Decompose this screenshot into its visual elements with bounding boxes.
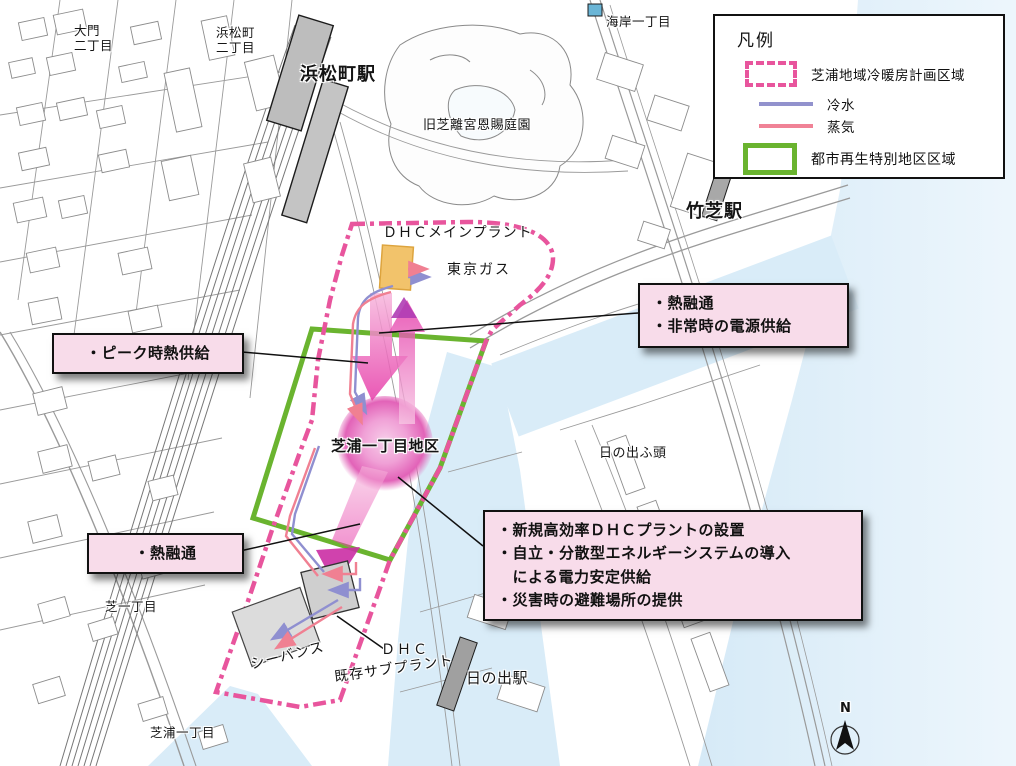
legend-item-cold-water: 冷水	[737, 94, 1003, 114]
label-takeshiba-station: 竹芝駅	[686, 201, 743, 222]
legend-box: 凡例 芝浦地域冷暖房計画区域 冷水 蒸気 都市再生特別地区区域	[713, 14, 1005, 179]
blue-line-icon	[759, 102, 813, 106]
label-hinode-station: 日の出駅	[466, 670, 528, 688]
label-kaigan-1chome: 海岸一丁目	[606, 15, 671, 30]
callout-heat-interchange-left: ・熱融通	[87, 533, 244, 574]
pink-dash-rect-icon	[745, 61, 797, 87]
label-hamamatsucho-station: 浜松町駅	[300, 64, 376, 85]
label-hinode-pier: 日の出ふ頭	[599, 446, 667, 461]
dhc-main-plant-building	[380, 245, 414, 290]
label-shibaura-1chome: 芝浦一丁目	[150, 726, 215, 741]
legend-item-label: 都市再生特別地区区域	[811, 149, 956, 169]
legend-item-plan-area: 芝浦地域冷暖房計画区域	[737, 61, 1003, 87]
flow-band-to-subplant	[332, 466, 388, 548]
green-rect-icon	[743, 143, 797, 175]
legend-title: 凡例	[737, 26, 1003, 51]
kyushiba-garden-park	[385, 25, 583, 205]
label-compass-north: N	[840, 701, 851, 716]
legend-item-label: 蒸気	[827, 116, 855, 136]
legend-item-steam: 蒸気	[737, 116, 1003, 136]
callout-new-dhc-plant: ・新規高効率ＤＨＣプラントの設置 ・自立・分散型エネルギーシステムの導入 による…	[483, 510, 863, 621]
legend-item-label: 芝浦地域冷暖房計画区域	[811, 64, 965, 84]
label-tokyo-gas: 東京ガス	[447, 262, 511, 279]
legend-item-special-district: 都市再生特別地区区域	[737, 143, 1003, 175]
legend-item-label: 冷水	[827, 94, 855, 114]
label-shibaura-1chome-district: 芝浦一丁目地区	[331, 438, 440, 456]
callout-peak-heat-supply: ・ピーク時熱供給	[52, 333, 244, 374]
pink-line-icon	[759, 124, 813, 128]
label-shiba-1chome: 芝一丁目	[105, 600, 157, 615]
label-dhc-main-plant: ＤＨＣメインプラント	[383, 225, 533, 242]
shibaura-dhc-plan-map: 大門 二丁目 浜松町 二丁目 浜松町駅 旧芝離宮恩賜庭園 海岸一丁目 竹芝駅 Ｄ…	[0, 0, 1016, 766]
flow-arrowhead-purple	[391, 297, 417, 318]
label-hamamatsucho-2chome: 浜松町 二丁目	[216, 26, 255, 56]
label-kyushiba-garden: 旧芝離宮恩賜庭園	[423, 118, 531, 133]
label-daimon-2chome: 大門 二丁目	[74, 24, 113, 54]
callout-heat-interchange-right: ・熱融通 ・非常時の電源供給	[638, 283, 849, 348]
